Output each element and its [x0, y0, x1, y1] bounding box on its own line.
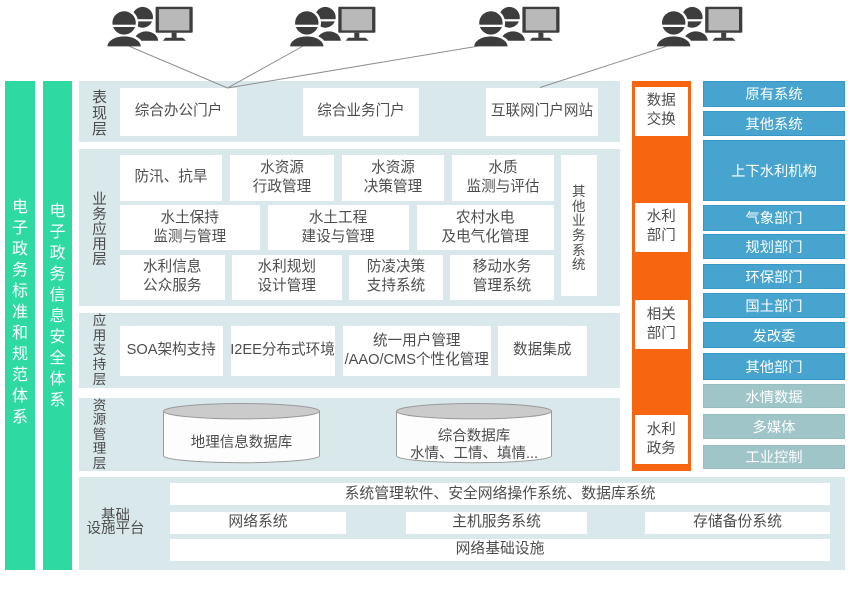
svg-text:水情、工情、填情...: 水情、工情、填情... [410, 445, 538, 462]
svg-text:地理信息数据库: 地理信息数据库 [191, 434, 293, 451]
svg-text:综合数据库: 综合数据库 [438, 428, 511, 445]
